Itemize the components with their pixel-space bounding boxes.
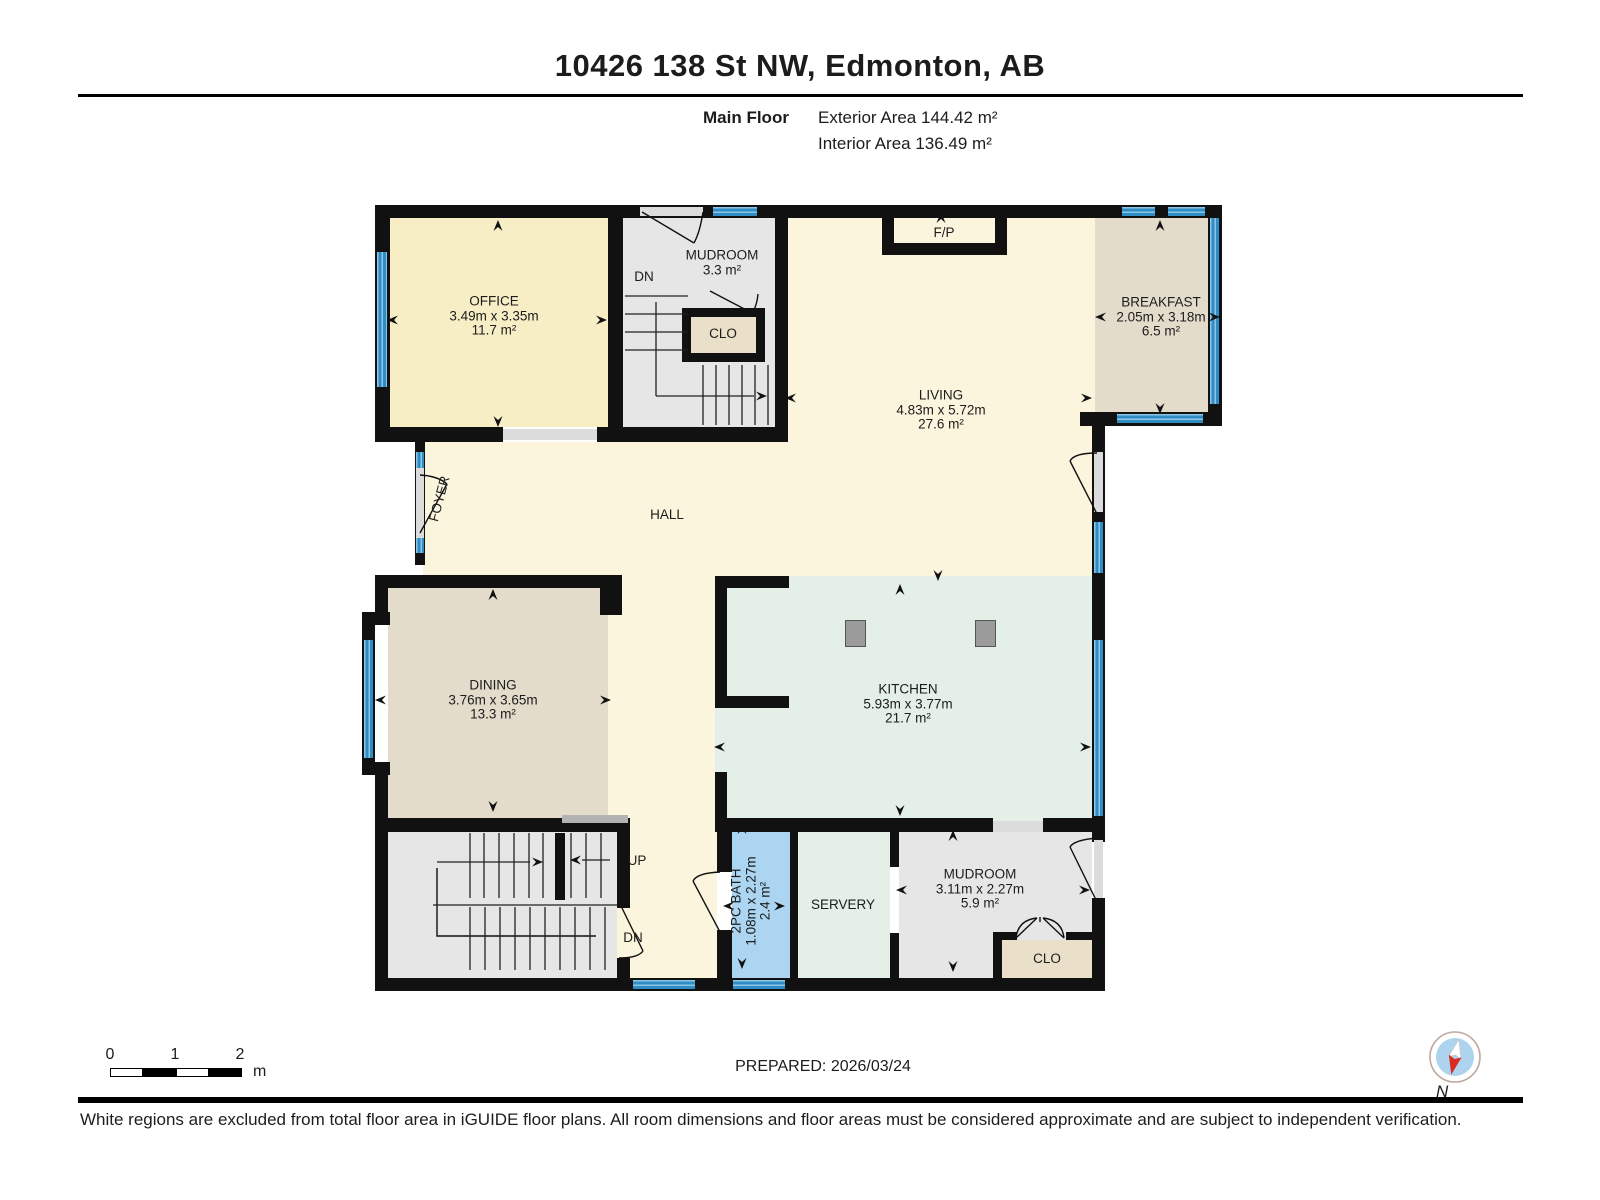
window xyxy=(633,980,695,989)
room-label-dining-text: 3.76m x 3.65m xyxy=(448,693,537,708)
wall xyxy=(715,818,993,832)
room-label-servery-text: SERVERY xyxy=(811,898,875,913)
room-label-fireplace: F/P xyxy=(933,226,954,241)
wall xyxy=(375,205,1222,218)
room-label-clo-bottom-text: CLO xyxy=(1033,952,1061,967)
room-label-mudroom-bottom-text: 5.9 m² xyxy=(936,896,1024,911)
room-label-hall-text: HALL xyxy=(650,508,684,523)
window xyxy=(1168,207,1205,216)
room-label-kitchen-text: KITCHEN xyxy=(863,682,952,697)
room-label-clo-bottom: CLO xyxy=(1033,952,1061,967)
window xyxy=(377,252,387,387)
opening-mudroom-bottom xyxy=(993,821,1043,832)
wall xyxy=(375,762,388,820)
scale-unit-label: m xyxy=(253,1063,266,1081)
wall xyxy=(890,832,899,867)
scale-seg-2 xyxy=(143,1068,176,1077)
wall xyxy=(790,832,798,978)
scale-tick-1: 1 xyxy=(171,1046,180,1064)
dimension-arrow-icon xyxy=(375,696,386,705)
room-label-mudroom-top-text: MUDROOM xyxy=(686,249,759,264)
wall xyxy=(375,818,388,991)
room-label-hall: HALL xyxy=(650,508,684,523)
wall xyxy=(608,205,623,442)
wall xyxy=(375,575,622,588)
wall xyxy=(1043,818,1092,832)
window xyxy=(1117,414,1203,423)
room-label-mudroom-bottom: MUDROOM3.11m x 2.27m5.9 m² xyxy=(936,867,1024,911)
scale-seg-1 xyxy=(110,1068,143,1077)
room-label-office-text: 3.49m x 3.35m xyxy=(449,309,538,324)
room-label-kitchen-text: 5.93m x 3.77m xyxy=(863,697,952,712)
room-label-clo-top-text: CLO xyxy=(709,327,737,342)
wall xyxy=(715,576,727,708)
stair-label-dn-top: DN xyxy=(634,270,654,285)
window xyxy=(713,207,757,216)
window xyxy=(1094,522,1103,573)
wall xyxy=(993,932,1017,940)
prepared-date: PREPARED: 2026/03/24 xyxy=(723,1058,923,1076)
wall-closet-top xyxy=(682,353,765,362)
footer-rule xyxy=(78,1097,1523,1103)
room-label-breakfast-text: 6.5 m² xyxy=(1116,324,1205,339)
room-label-mudroom-bottom-text: 3.11m x 2.27m xyxy=(936,882,1024,897)
stair-label-up: UP xyxy=(628,854,647,869)
wall-fireplace xyxy=(882,243,1007,255)
scale-seg-3 xyxy=(176,1068,209,1077)
opening-mudroom-top-door xyxy=(640,207,703,216)
room-fill-hall-foyer xyxy=(423,442,788,582)
window xyxy=(1210,218,1219,404)
disclaimer-text: White regions are excluded from total fl… xyxy=(80,1110,1520,1130)
kitchen-fixture xyxy=(845,620,866,647)
opening-mudroom-entry xyxy=(1094,840,1103,898)
room-label-office-text: 11.7 m² xyxy=(449,323,538,338)
room-label-dining-text: DINING xyxy=(448,678,537,693)
room-label-mudroom-top-text: 3.3 m² xyxy=(686,263,759,278)
room-label-breakfast-text: 2.05m x 3.18m xyxy=(1116,310,1205,325)
room-label-clo-top: CLO xyxy=(709,327,737,342)
room-label-kitchen: KITCHEN5.93m x 3.77m21.7 m² xyxy=(863,682,952,726)
room-label-bath: 2PC BATH1.08m x 2.27m2.4 m² xyxy=(729,856,773,945)
floorplan-page: 10426 138 St NW, Edmonton, AB Main Floor… xyxy=(0,0,1600,1200)
opening-foyer-door xyxy=(416,468,424,538)
opening-living-door xyxy=(1094,452,1103,512)
room-label-living-text: 27.6 m² xyxy=(896,417,985,432)
stair-label-dn-bottom: DN xyxy=(623,931,643,946)
window xyxy=(733,980,785,989)
stair-label-dn-bottom-text: DN xyxy=(623,931,643,946)
wall-closet-top xyxy=(682,308,691,362)
window xyxy=(364,640,373,758)
room-label-dining: DINING3.76m x 3.65m13.3 m² xyxy=(448,678,537,722)
floor-plan: OFFICE3.49m x 3.35m11.7 m²MUDROOM3.3 m²D… xyxy=(0,0,1600,1200)
kitchen-fixture xyxy=(975,620,996,647)
room-label-living-text: LIVING xyxy=(896,388,985,403)
room-fill-hall-bottom xyxy=(628,823,717,978)
wall xyxy=(597,427,788,442)
room-label-breakfast-text: BREAKFAST xyxy=(1116,295,1205,310)
scale-tick-0: 0 xyxy=(106,1046,115,1064)
wall xyxy=(600,575,622,615)
opening-office xyxy=(503,429,597,440)
wall-stair-divider xyxy=(555,833,565,900)
wall xyxy=(775,205,788,442)
wall xyxy=(1066,932,1092,940)
room-label-mudroom-top: MUDROOM3.3 m² xyxy=(686,249,759,278)
room-label-bath-text: 2.4 m² xyxy=(758,856,773,945)
wall-closet-top xyxy=(682,308,765,317)
scale-tick-2: 2 xyxy=(236,1046,245,1064)
room-label-office: OFFICE3.49m x 3.35m11.7 m² xyxy=(449,294,538,338)
wall xyxy=(715,772,727,820)
scale-seg-4 xyxy=(209,1068,242,1077)
room-label-office-text: OFFICE xyxy=(449,294,538,309)
stair-landing-cap xyxy=(562,815,628,823)
room-label-bath-text: 2PC BATH xyxy=(729,856,744,945)
window xyxy=(416,452,424,468)
room-label-breakfast: BREAKFAST2.05m x 3.18m6.5 m² xyxy=(1116,295,1205,339)
room-label-bath-text: 1.08m x 2.27m xyxy=(744,856,759,945)
wall xyxy=(375,427,503,442)
room-fill-stairs-bottom xyxy=(388,832,617,978)
room-label-servery: SERVERY xyxy=(811,898,875,913)
stair-label-up-text: UP xyxy=(628,854,647,869)
room-label-living: LIVING4.83m x 5.72m27.6 m² xyxy=(896,388,985,432)
window xyxy=(416,538,424,553)
room-fill-hall-mid xyxy=(608,582,715,823)
room-label-living-text: 4.83m x 5.72m xyxy=(896,403,985,418)
window xyxy=(1094,640,1103,816)
wall xyxy=(715,696,789,708)
window xyxy=(1122,207,1155,216)
wall-closet-top xyxy=(756,308,765,362)
compass-icon xyxy=(1427,1029,1483,1085)
room-label-fireplace-text: F/P xyxy=(933,226,954,241)
room-label-mudroom-bottom-text: MUDROOM xyxy=(936,867,1024,882)
wall xyxy=(890,933,899,978)
room-label-dining-text: 13.3 m² xyxy=(448,707,537,722)
stair-label-dn-top-text: DN xyxy=(634,270,654,285)
room-label-kitchen-text: 21.7 m² xyxy=(863,711,952,726)
